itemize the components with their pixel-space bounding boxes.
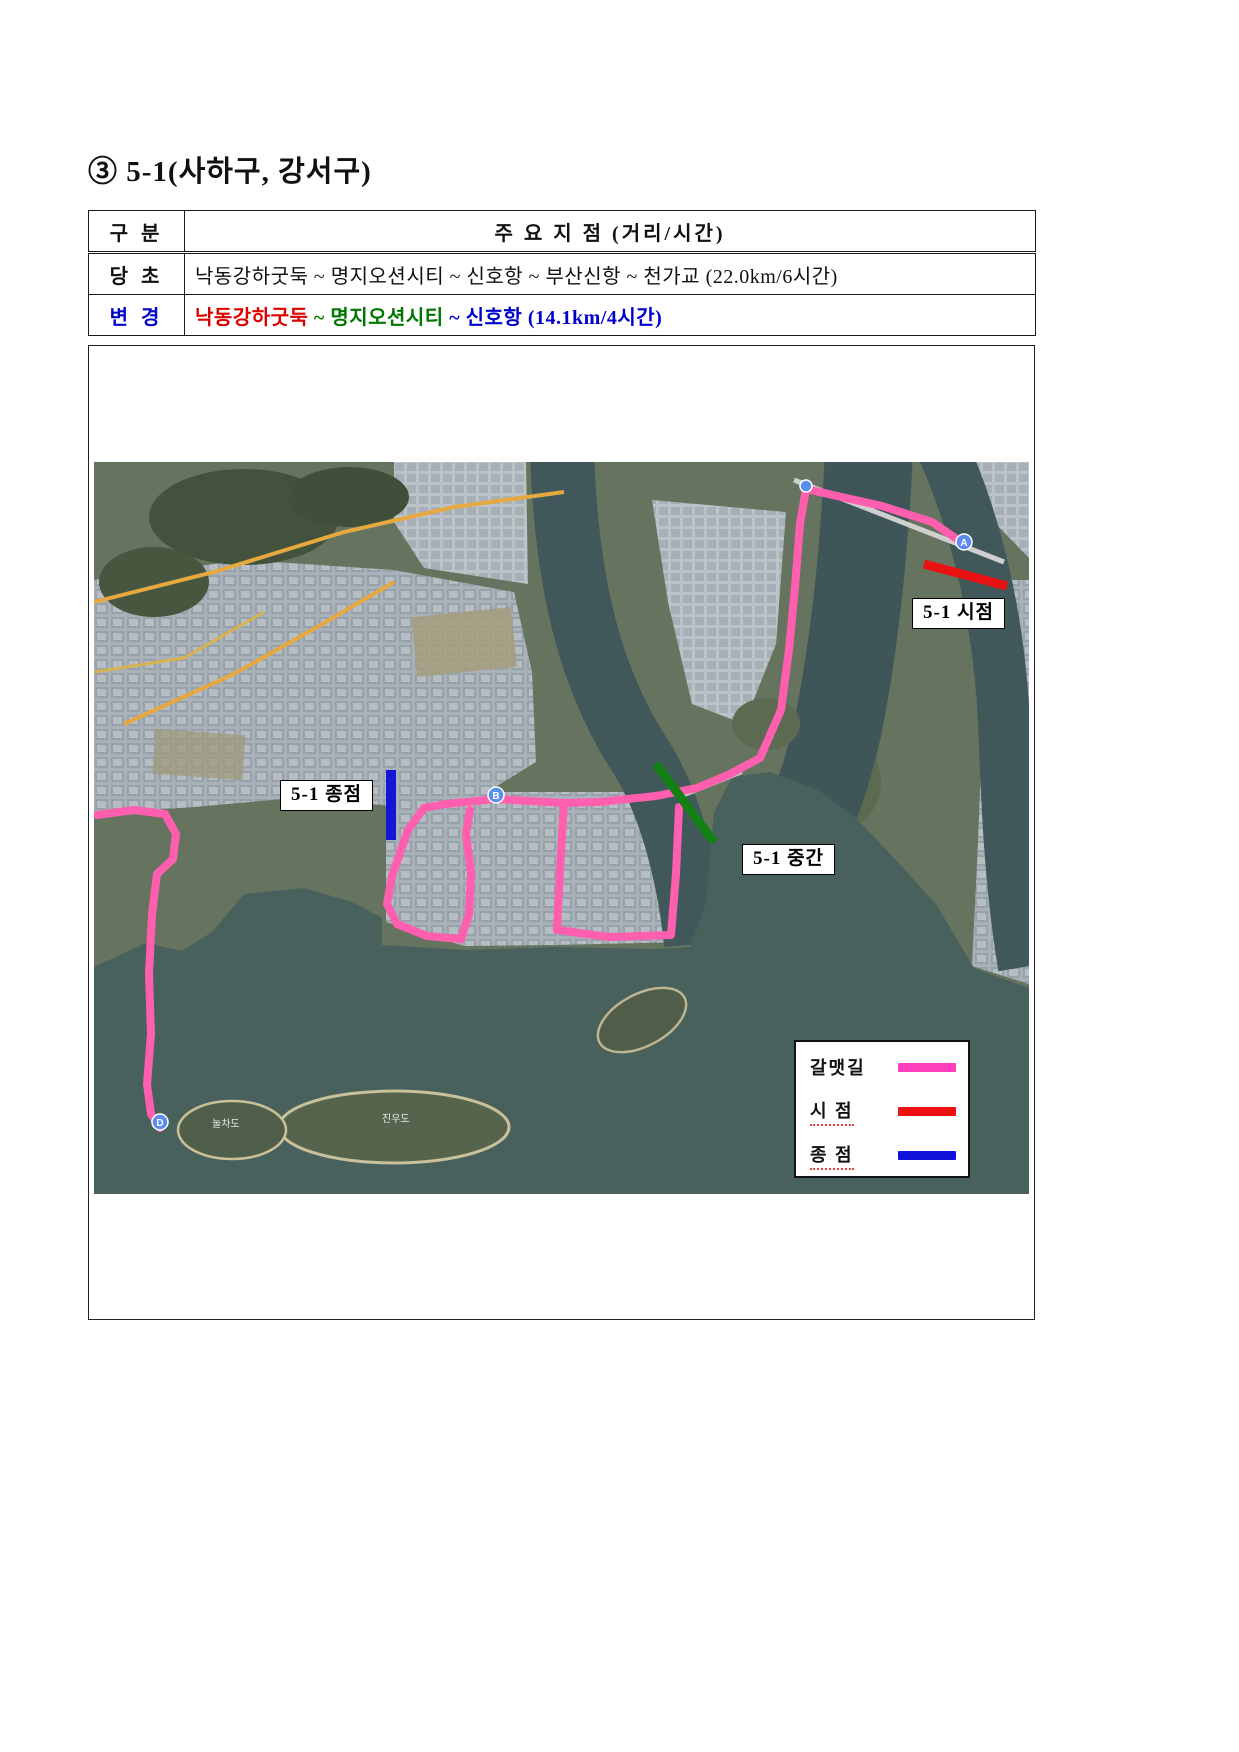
legend-row-end: 종 점 — [810, 1142, 956, 1168]
map-legend: 갈맷길 시 점 종 점 — [794, 1040, 970, 1178]
label-start-point: 5-1 시점 — [912, 598, 1005, 629]
legend-swatch-end — [898, 1151, 956, 1160]
legend-swatch-start — [898, 1107, 956, 1116]
row-content-changed: 낙동강하굿둑 ~ 명지오션시티 ~ 신호항 (14.1km/4시간) — [185, 295, 1036, 336]
row-label-original: 당 초 — [89, 253, 185, 295]
route-text: 낙동강하굿둑 ~ 명지오션시티 ~ 신호항 ~ 부산신항 ~ 천가교 (22.0… — [195, 266, 838, 288]
hill — [289, 467, 409, 527]
route-text-segment: 낙동강하굿둑 — [195, 307, 308, 329]
row-content-original: 낙동강하굿둑 ~ 명지오션시티 ~ 신호항 ~ 부산신항 ~ 천가교 (22.0… — [185, 253, 1036, 295]
route-summary-table: 구 분 주 요 지 점 (거리/시간) 당 초 낙동강하굿둑 ~ 명지오션시티 … — [88, 210, 1036, 336]
route-text-segment: 신호항 (14.1km/4시간) — [466, 307, 663, 329]
label-mid-point: 5-1 중간 — [742, 844, 835, 875]
table-row-original: 당 초 낙동강하굿둑 ~ 명지오션시티 ~ 신호항 ~ 부산신항 ~ 천가교 (… — [89, 253, 1036, 295]
end-segment — [386, 770, 396, 840]
svg-text:B: B — [492, 791, 499, 802]
document-page: ③ 5-1(사하구, 강서구) 구 분 주 요 지 점 (거리/시간) 당 초 … — [0, 0, 1239, 1752]
field-patch — [411, 607, 517, 677]
row-label-changed: 변 경 — [89, 295, 185, 336]
map-pin-b: B — [488, 787, 504, 803]
island-label: 진우도 — [382, 1113, 410, 1125]
island-label: 눌차도 — [212, 1118, 240, 1130]
legend-swatch-galmaetgil — [898, 1063, 956, 1072]
legend-label-start: 시 점 — [810, 1097, 854, 1126]
table-row-changed: 변 경 낙동강하굿둑 ~ 명지오션시티 ~ 신호항 (14.1km/4시간) — [89, 295, 1036, 336]
island-nulcha — [178, 1101, 286, 1159]
route-text-segment: ~ — [308, 307, 330, 329]
route-text-segment: 명지오션시티 — [330, 307, 443, 329]
svg-text:D: D — [156, 1118, 163, 1129]
legend-row-galmaetgil: 갈맷길 — [810, 1054, 956, 1080]
map-pin-top — [800, 480, 812, 492]
route-map-frame: 눌차도 진우도 A — [88, 345, 1035, 1320]
legend-label-galmaetgil: 갈맷길 — [810, 1054, 866, 1080]
satellite-map-image: 눌차도 진우도 A — [94, 462, 1029, 1194]
label-end-point: 5-1 종점 — [280, 780, 373, 811]
svg-text:A: A — [960, 538, 967, 549]
column-header-points: 주 요 지 점 (거리/시간) — [185, 211, 1036, 253]
map-pin-a: A — [956, 534, 972, 550]
page-title: ③ 5-1(사하구, 강서구) — [88, 148, 372, 190]
legend-label-end: 종 점 — [810, 1141, 854, 1170]
column-header-category: 구 분 — [89, 211, 185, 253]
hill — [99, 547, 209, 617]
island-jinwoo — [279, 1091, 509, 1163]
route-text-segment: ~ — [444, 307, 466, 329]
field-patch — [153, 729, 246, 780]
table-header-row: 구 분 주 요 지 점 (거리/시간) — [89, 211, 1036, 253]
legend-row-start: 시 점 — [810, 1098, 956, 1124]
map-pin-d: D — [152, 1114, 168, 1130]
